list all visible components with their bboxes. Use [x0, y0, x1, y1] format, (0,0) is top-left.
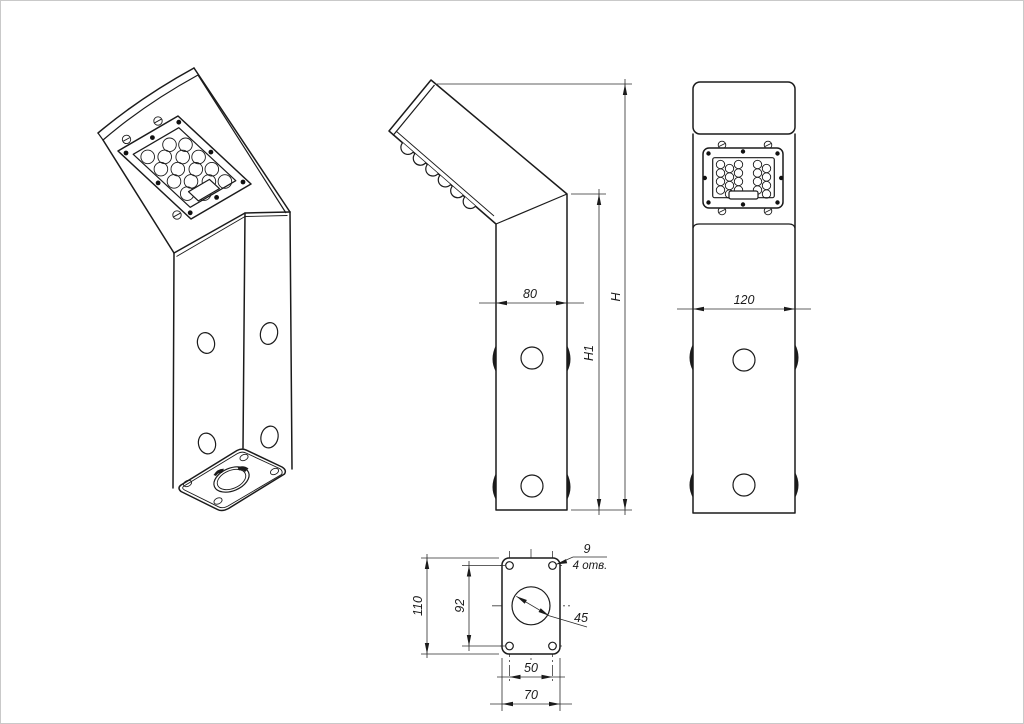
mounting-flange-isometric [179, 449, 285, 510]
front-head-cap [693, 82, 795, 134]
dim-label-45: 45 [574, 611, 588, 625]
lens-scallops [401, 143, 476, 209]
dimension-120: 120 [677, 293, 811, 311]
dim-label-9: 9 [584, 542, 591, 556]
dim-label-80: 80 [523, 287, 537, 301]
side-outline [389, 80, 567, 510]
column-isometric [173, 212, 292, 488]
dimension-50: 50 [497, 661, 565, 679]
dim-label-50: 50 [524, 661, 538, 675]
dimension-80: 80 [479, 287, 584, 305]
dim-label-H1: H1 [582, 345, 596, 361]
module-connector [729, 191, 758, 199]
led-module-isometric [118, 116, 251, 219]
dim-label-110: 110 [411, 596, 425, 616]
front-view: 120 [677, 82, 811, 513]
side-view: 80 H H1 [389, 79, 632, 515]
front-holes [733, 349, 755, 496]
dimension-H1: H1 [571, 189, 606, 515]
dim-label-H: H [609, 292, 623, 302]
side-edge-plugs [493, 345, 571, 500]
dim-label-70: 70 [524, 688, 538, 702]
dim-label-hole-count: 4 отв. [573, 560, 608, 572]
front-seam [693, 224, 795, 228]
drawing-sheet: 80 H H1 [0, 0, 1024, 724]
technical-drawing: 80 H H1 [1, 1, 1023, 723]
dimension-9-holes: 9 4 отв. [556, 542, 607, 572]
bottom-view: 110 92 50 70 [411, 542, 607, 711]
side-holes [521, 347, 543, 497]
dim-label-120: 120 [734, 293, 755, 307]
led-module-front [703, 141, 784, 215]
isometric-view [98, 68, 292, 511]
front-edge-plugs [690, 344, 799, 498]
dim-label-92: 92 [453, 599, 467, 613]
flange-plate [502, 558, 560, 654]
